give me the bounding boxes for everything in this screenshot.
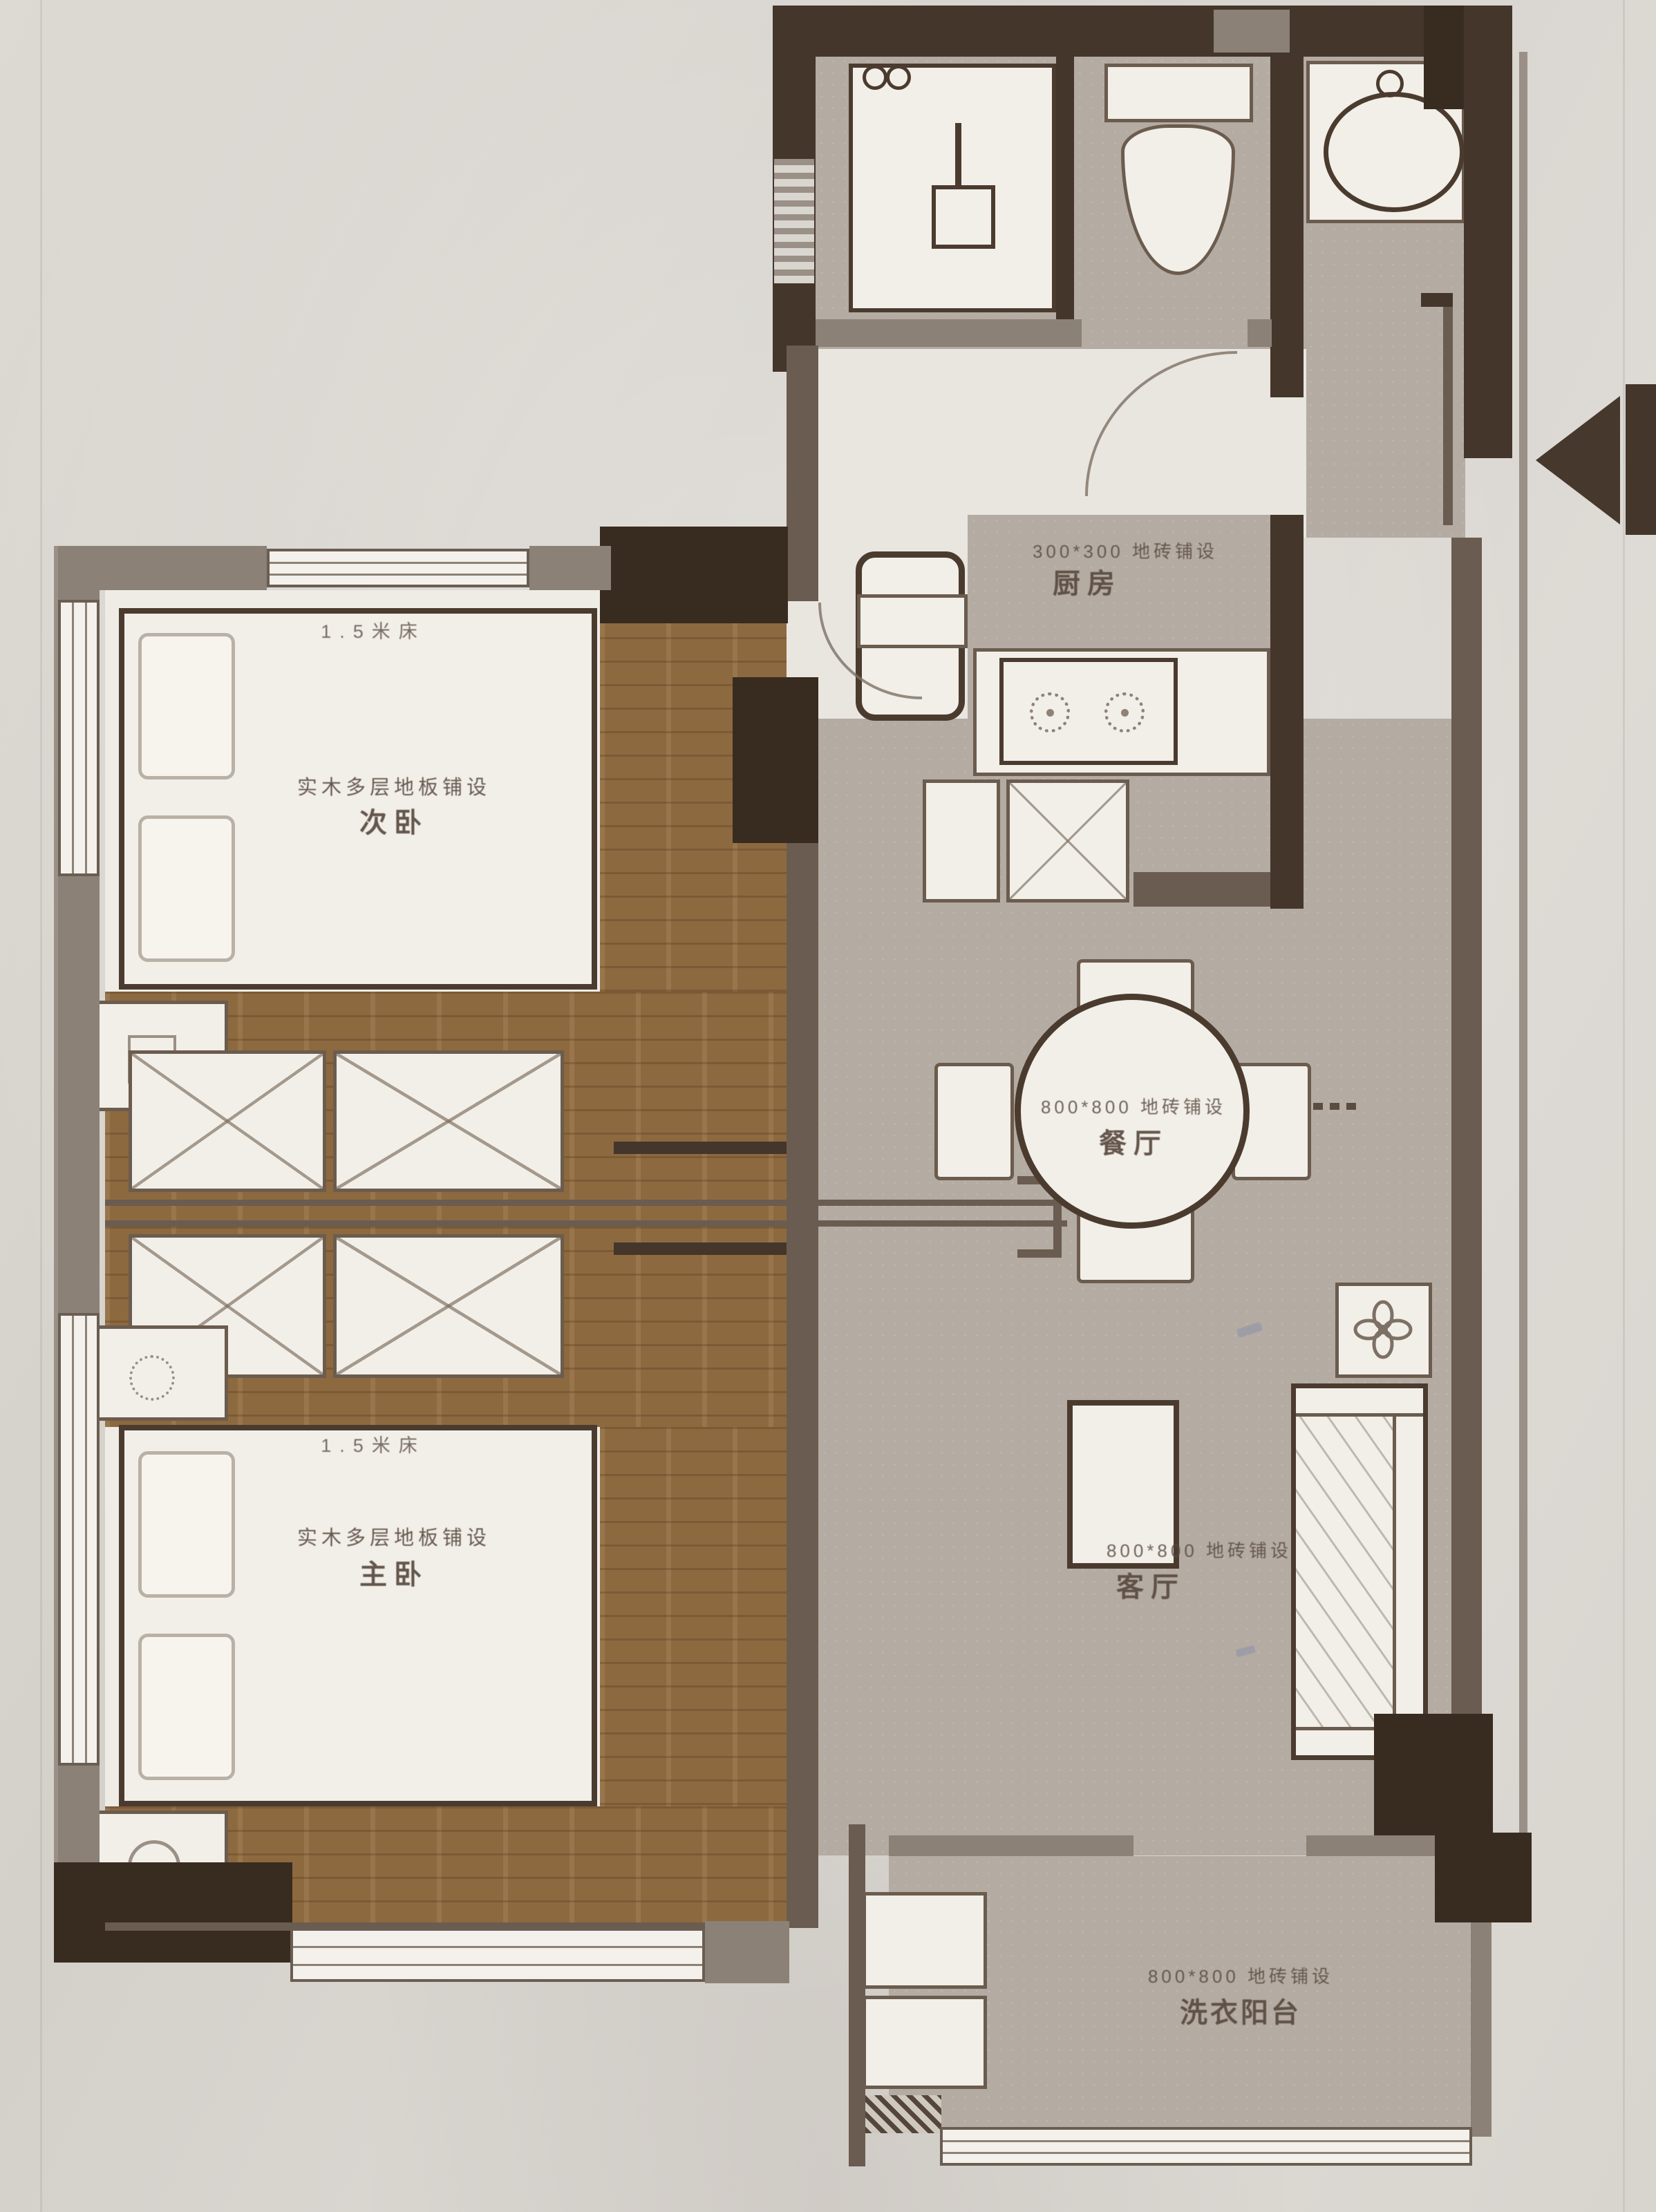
kitchen-cabinet xyxy=(923,779,1000,902)
wall-right-upper xyxy=(1464,6,1512,458)
shaft-stripes xyxy=(774,159,814,283)
kitchen-cabinet xyxy=(1006,779,1129,902)
washer-cabinet xyxy=(863,1892,987,1989)
corridor-door-jamb xyxy=(614,1242,793,1255)
wall-block-bedroom-tr xyxy=(600,527,788,623)
plant-box xyxy=(1335,1283,1432,1378)
wardrobe xyxy=(333,1234,564,1378)
corridor-door-jamb xyxy=(614,1142,793,1154)
wall-kitchen-right-lower xyxy=(1270,515,1304,909)
wall-kitchen-right-upper xyxy=(1270,55,1304,397)
wall-corner-block-balcony xyxy=(1435,1833,1532,1922)
window-balcony-south xyxy=(940,2127,1472,2166)
window-master-bedroom xyxy=(58,1313,100,1766)
faucet-icon xyxy=(1376,70,1404,97)
floor-note-secondary: 实木多层地板铺设 xyxy=(187,771,601,800)
wall-bl-corner-seg xyxy=(705,1921,789,1983)
wall-center-main xyxy=(787,694,818,1928)
wall-top-left-seg xyxy=(529,546,611,590)
washer-cabinet xyxy=(863,1996,987,2089)
entry-foyer-floor xyxy=(1305,223,1465,538)
wall-balcony-left xyxy=(849,1824,865,2166)
room-name-laundry: 洗衣阳台 xyxy=(1078,1990,1403,2030)
wall-balcony-right xyxy=(1471,1922,1492,2137)
outer-boundary-line xyxy=(1519,52,1527,1855)
pillow xyxy=(138,633,235,779)
wall-left-seg xyxy=(58,876,100,1318)
wood-corridor-lower xyxy=(600,1427,788,1808)
wall-balcony-top xyxy=(1306,1835,1451,1856)
wardrobe xyxy=(129,1050,326,1192)
pillow xyxy=(138,1634,235,1780)
room-name-kitchen: 厨房 xyxy=(973,561,1201,601)
room-name-dining: 餐厅 xyxy=(988,1121,1279,1161)
wall-balcony-top xyxy=(889,1835,1133,1856)
window-top-secondary xyxy=(267,549,529,587)
room-name-secondary: 次卧 xyxy=(187,800,601,840)
bed-size-label-secondary: 1.5米床 xyxy=(228,616,518,643)
floor-note-laundry: 800*800 地砖铺设 xyxy=(1078,1963,1403,1988)
bed-size-label-master: 1.5米床 xyxy=(228,1430,518,1457)
window-secondary-bedroom xyxy=(58,600,100,876)
entry-arrow-icon xyxy=(1536,396,1620,524)
shower-stall xyxy=(849,64,1056,312)
stove xyxy=(999,658,1178,765)
wall-top xyxy=(773,6,1512,57)
dimension-dashes xyxy=(1313,1103,1362,1110)
wall-kitchen-stub xyxy=(1133,872,1270,907)
wall-corner-block-bl xyxy=(54,1862,292,1963)
sofa-armrest xyxy=(1296,1413,1423,1417)
wall-shower-divider xyxy=(1056,52,1074,321)
sliding-door-line xyxy=(1443,297,1453,525)
paper-fold-line xyxy=(1623,0,1625,2212)
door-hook xyxy=(1421,293,1453,307)
mop-pool xyxy=(865,2095,941,2133)
plant-spiral-icon xyxy=(129,1355,175,1401)
hinge-circle-icon xyxy=(886,65,911,90)
wardrobe xyxy=(333,1050,564,1192)
wall-top-left-seg xyxy=(58,546,267,590)
floor-note-living: 800*800 地砖铺设 xyxy=(1037,1537,1362,1562)
toilet-tank xyxy=(1104,64,1253,122)
wall-gap xyxy=(1214,10,1290,53)
paper-fold-line xyxy=(40,0,42,2212)
wall-center-upper xyxy=(787,346,818,601)
wall-bath-bottom xyxy=(1248,319,1272,347)
wall-block-hall xyxy=(733,677,818,843)
window-master-south xyxy=(290,1928,705,1982)
partition-track-line xyxy=(105,1200,1067,1206)
wall-right-main xyxy=(1451,538,1482,1721)
floorplan-photo: 1.5米床 实木多层地板铺设 次卧 1.5米床 实木多层地板铺设 主卧 300*… xyxy=(0,0,1656,2212)
partition-track-line xyxy=(105,1220,1067,1227)
floor-note-kitchen: 300*300 地砖铺设 xyxy=(973,538,1277,563)
room-name-living: 客厅 xyxy=(988,1565,1313,1605)
hinge-circle-icon xyxy=(863,65,887,90)
room-name-master: 主卧 xyxy=(187,1552,601,1592)
stove-burner-icon xyxy=(1104,692,1145,732)
stove-burner-icon xyxy=(1030,692,1070,732)
floor-note-dining: 800*800 地砖铺设 xyxy=(988,1093,1279,1119)
flower-icon xyxy=(1348,1295,1418,1364)
wall-bath-bottom xyxy=(816,319,1082,347)
entry-arrow-bar-icon xyxy=(1626,384,1656,535)
shower-head-icon xyxy=(932,185,995,249)
floor-note-master: 实木多层地板铺设 xyxy=(187,1522,601,1551)
sink-basin-icon xyxy=(1324,92,1465,212)
shower-stem xyxy=(955,123,961,187)
